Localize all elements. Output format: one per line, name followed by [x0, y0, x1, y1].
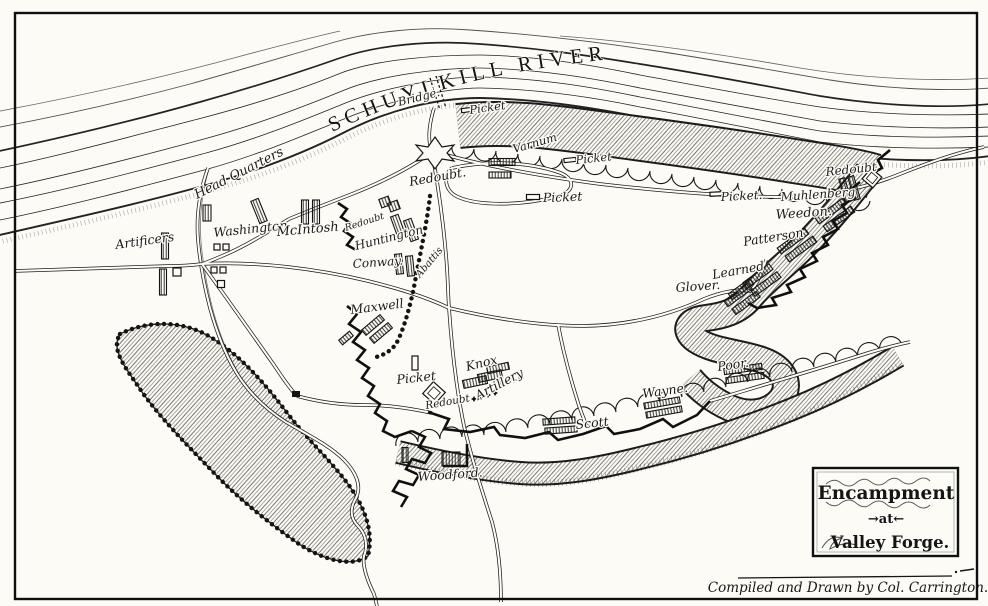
- label-woodford: Woodford.: [417, 464, 483, 484]
- picket-post: [564, 157, 576, 162]
- label-redoubt-small: Redoubt: [343, 211, 386, 234]
- label-maxwell: Maxwell: [349, 296, 405, 318]
- barracks: [402, 448, 408, 463]
- cartouche-title-line1: Encampment: [818, 483, 955, 504]
- label-abattis: Abattis: [413, 245, 445, 280]
- barracks: [160, 269, 167, 295]
- headquarters-house: [203, 205, 211, 221]
- credit-line: Compiled and Drawn by Col. Carrington.: [708, 569, 988, 596]
- building: [292, 391, 300, 397]
- credit-rule-dash: [960, 569, 974, 571]
- shore-contour: [560, 36, 988, 80]
- valley-forge-map-page: SCHUYLKILL RIVER Bridge. Picket Varnum P…: [0, 0, 988, 606]
- label-wayne: Wayne.: [641, 380, 688, 401]
- label-picket-mid-east: Picket: [574, 149, 613, 167]
- valley-forge-map: SCHUYLKILL RIVER Bridge. Picket Varnum P…: [0, 0, 988, 606]
- shore-contour: [0, 31, 340, 112]
- barracks: [489, 172, 511, 178]
- building: [214, 244, 220, 250]
- building: [218, 281, 225, 288]
- building: [223, 244, 229, 250]
- southwest-woods: [117, 324, 370, 562]
- credit-rule-dot: [955, 571, 957, 573]
- cartouche-title-line2: →at←: [868, 512, 904, 527]
- cartouche: Encampment →at← Valley Forge.: [813, 468, 958, 556]
- picket-post: [412, 356, 418, 370]
- credit-rule: [738, 576, 952, 578]
- building: [220, 267, 226, 273]
- label-scott: Scott: [575, 413, 610, 431]
- barracks: [302, 200, 309, 224]
- barracks: [489, 159, 515, 166]
- label-picket-east: Picket.: [719, 188, 762, 204]
- star-fort-north: [416, 137, 454, 169]
- building: [173, 268, 181, 276]
- barracks: [442, 452, 460, 466]
- barracks: [545, 426, 577, 434]
- credit-text: Compiled and Drawn by Col. Carrington.: [708, 580, 988, 596]
- barracks: [339, 331, 354, 345]
- cartouche-title-line3: Valley Forge.: [830, 533, 950, 552]
- building: [211, 267, 217, 273]
- label-picket-mid: Picket: [542, 189, 584, 205]
- picket-post: [527, 195, 540, 200]
